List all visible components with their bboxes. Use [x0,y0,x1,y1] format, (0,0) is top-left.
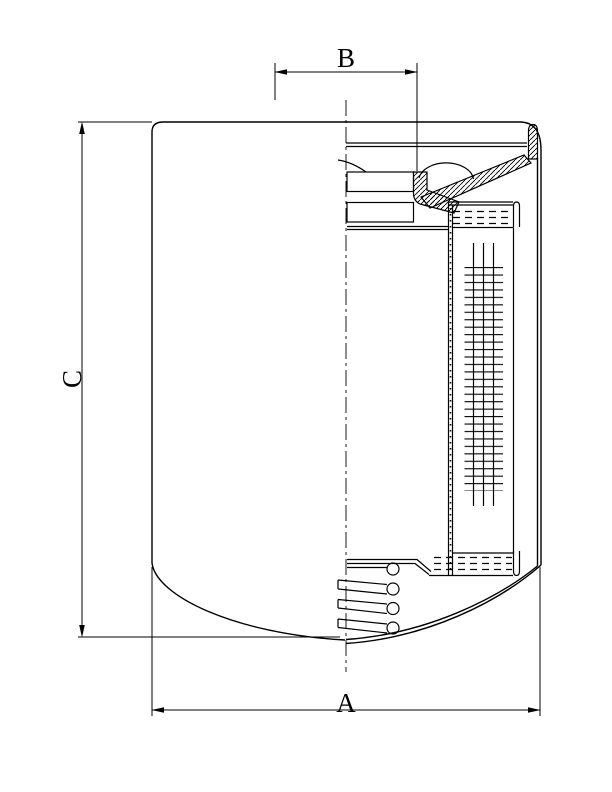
dimension-b-arrow-left [275,69,288,75]
dimension-b-arrow-right [405,69,418,75]
thread-profile-lower [347,203,414,223]
spring-coil-turn-3 [338,619,387,633]
can-bottom-silhouette-left [152,563,345,640]
top-endcap-tab [514,202,520,227]
drawing-sheet: C B A [0,0,612,792]
dimension-a-arrow-right [528,707,541,713]
spring-wire-section-2 [387,583,399,595]
spring-wire-section-1 [387,563,399,575]
spring-coil-turn-1 [338,580,387,594]
dimension-c-arrow-up [79,122,85,135]
dimension-a-label: A [336,688,356,718]
baseplate-section [338,125,538,230]
inlet-hole-arc-left [338,160,366,172]
thread-profile-upper [347,172,414,192]
dimension-b-label: B [337,43,355,73]
media-pleat-grid [465,267,504,491]
filter-element [347,202,520,576]
seam-curl-hatched [529,125,538,160]
spring-coil-turn-2 [338,600,387,614]
can-top-left-corner [152,122,163,132]
dimension-c: C [57,122,340,638]
dimension-c-label: C [57,370,87,388]
bottom-endcap-tab [514,551,520,576]
dimension-c-arrow-down [79,625,85,638]
filter-cross-section-drawing: C B A [0,0,612,792]
coil-spring [338,563,399,634]
dimension-a-arrow-left [152,707,165,713]
spring-wire-section-3 [387,603,399,615]
